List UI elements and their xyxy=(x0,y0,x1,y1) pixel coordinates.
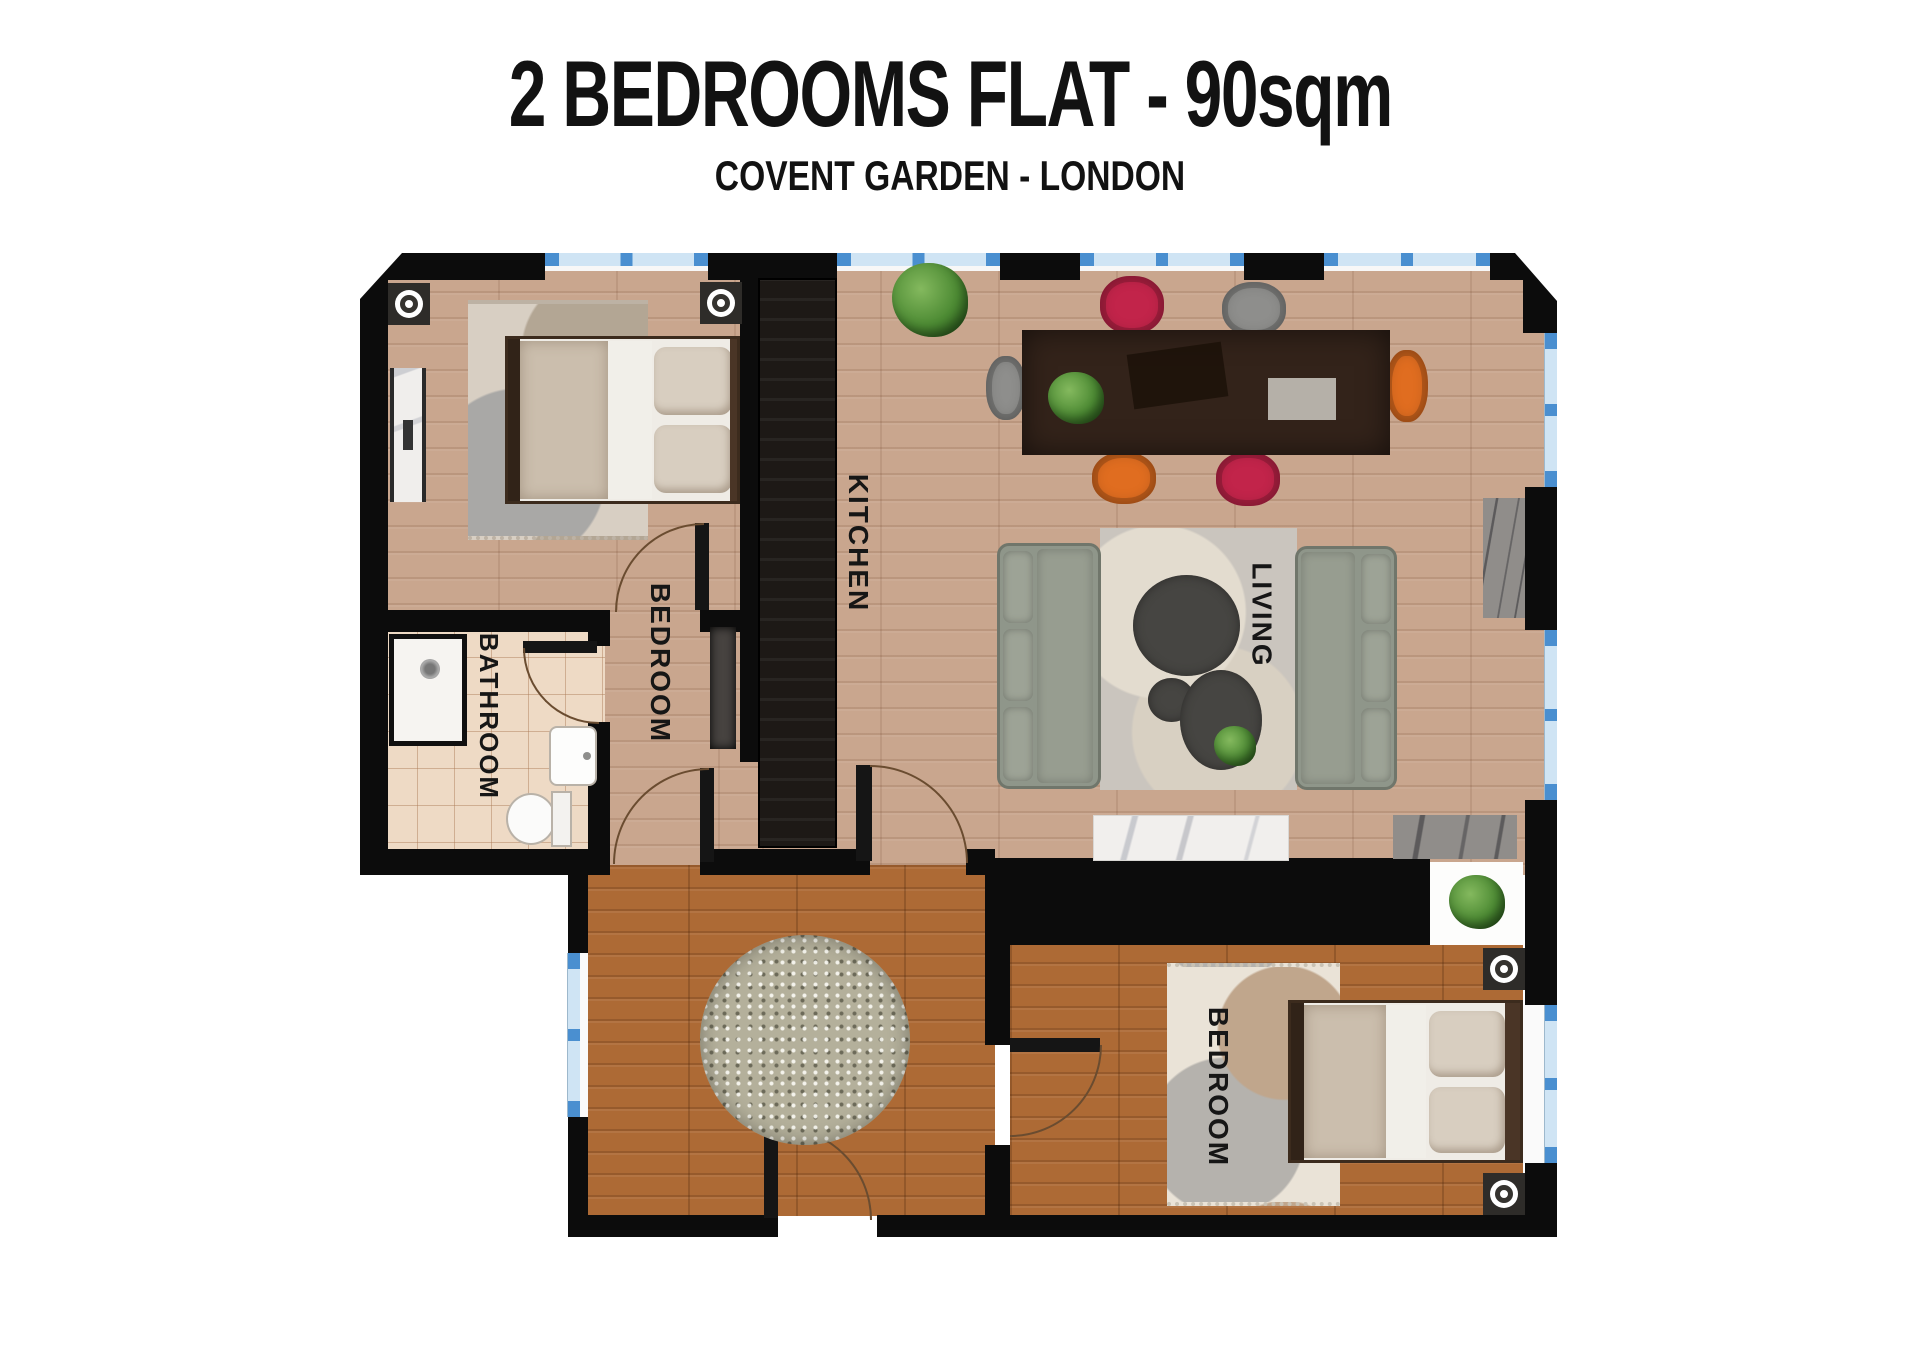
ceiling-light-ring xyxy=(1490,1180,1518,1208)
sofa-seat xyxy=(1301,552,1355,784)
wall-segment xyxy=(985,858,1430,945)
sofa-cushion xyxy=(1003,551,1033,623)
wall-segment xyxy=(1244,253,1324,280)
double-bed xyxy=(1288,1000,1523,1163)
room-label-living: LIVING xyxy=(1244,537,1280,692)
window xyxy=(545,253,708,266)
bed-duvet xyxy=(1304,1005,1386,1158)
window-recess xyxy=(1523,1005,1545,1163)
room-label-bedroom-top: BEDROOM xyxy=(642,588,678,738)
wall-segment xyxy=(877,1215,995,1237)
sofa-cushion xyxy=(1003,629,1033,701)
sofa-cushion xyxy=(1003,707,1033,781)
bed-pillow xyxy=(654,347,732,415)
marble-bench xyxy=(1393,815,1517,859)
corridor-cabinet xyxy=(710,627,736,749)
sofa-cushion xyxy=(1361,630,1391,702)
ceiling-light-icon xyxy=(700,282,742,324)
sofa-left xyxy=(997,543,1101,789)
tv-console xyxy=(1093,815,1289,861)
room-label-text: BATHROOM xyxy=(474,632,505,799)
serving-board xyxy=(1127,342,1229,410)
window-recess xyxy=(580,953,588,1117)
window xyxy=(1545,630,1557,800)
ceiling-light-icon xyxy=(388,283,430,325)
room-label-text: KITCHEN xyxy=(842,473,874,611)
room-label-text: BEDROOM xyxy=(644,583,676,743)
ceiling-light-icon xyxy=(1483,1173,1525,1215)
wall-segment xyxy=(568,1215,778,1237)
room-label-kitchen: KITCHEN xyxy=(840,465,876,620)
bed-pillow xyxy=(1429,1087,1505,1153)
wall-segment xyxy=(995,1215,1557,1237)
window xyxy=(1545,333,1557,487)
dining-chair-red xyxy=(1100,276,1164,334)
wall-segment xyxy=(1525,945,1557,1005)
plant-icon xyxy=(1449,875,1505,929)
room-label-text: BEDROOM xyxy=(1202,1007,1234,1167)
room-label-text: LIVING xyxy=(1246,562,1278,667)
round-rug xyxy=(700,935,910,1145)
dining-chair-gray xyxy=(986,356,1026,420)
page-title: 2 BEDROOMS FLAT - 90sqm xyxy=(508,40,1391,148)
dining-chair-orange xyxy=(1386,350,1428,422)
placemat xyxy=(1268,378,1336,420)
bed-footboard xyxy=(1291,1003,1304,1160)
sofa-cushion xyxy=(1361,708,1391,782)
wall-segment xyxy=(1525,487,1557,630)
wall-segment xyxy=(1000,253,1080,280)
wall-segment xyxy=(360,253,388,875)
bed-sheet xyxy=(1386,1005,1426,1158)
bed-pillow xyxy=(1429,1011,1505,1077)
bed-footboard xyxy=(508,339,520,501)
sofa-seat xyxy=(1037,549,1093,783)
bathroom-sink xyxy=(549,726,597,786)
double-bed xyxy=(505,336,740,504)
kitchen-counter xyxy=(758,278,837,848)
dining-chair-gray xyxy=(1222,282,1286,336)
dining-chair-red xyxy=(1216,452,1280,506)
toilet-tank xyxy=(551,791,572,847)
toilet xyxy=(506,793,556,845)
wall-segment xyxy=(360,849,608,875)
shower-drain xyxy=(420,659,440,679)
wall-segment xyxy=(1525,800,1557,945)
ceiling-light-ring xyxy=(1490,955,1518,983)
bed-sheet xyxy=(608,341,652,499)
floor-plan-canvas: 2 BEDROOMS FLAT - 90sqm COVENT GARDEN - … xyxy=(0,0,1920,1358)
page-subtitle-wrap: COVENT GARDEN - LONDON xyxy=(320,152,1580,200)
wall-segment xyxy=(700,849,870,875)
bed-headboard xyxy=(730,339,737,501)
table-plant-icon xyxy=(1048,372,1104,424)
dining-table xyxy=(1022,330,1390,455)
bed-pillow xyxy=(654,425,732,493)
sofa-right xyxy=(1295,546,1397,790)
wall-segment xyxy=(985,1145,1010,1215)
shower-tray xyxy=(389,634,467,746)
wall-segment xyxy=(568,875,588,953)
room-label-bedroom-bottom: BEDROOM xyxy=(1200,1007,1236,1167)
bed-duvet xyxy=(520,341,608,499)
sofa-cushion xyxy=(1361,554,1391,624)
wall-segment xyxy=(708,253,837,280)
dresser xyxy=(390,368,426,502)
fireplace xyxy=(1483,498,1525,618)
ceiling-light-ring xyxy=(395,290,423,318)
window xyxy=(1545,1005,1557,1163)
wall-segment xyxy=(985,945,1010,1045)
ceiling-light-icon xyxy=(1483,948,1525,990)
dining-chair-orange xyxy=(1092,452,1156,504)
page-title-wrap: 2 BEDROOMS FLAT - 90sqm xyxy=(320,40,1580,148)
plant-icon xyxy=(1214,726,1256,766)
window xyxy=(568,953,580,1117)
room-label-bathroom: BATHROOM xyxy=(471,626,507,806)
window xyxy=(1324,253,1490,266)
bed-headboard xyxy=(1505,1003,1520,1160)
rug-circle xyxy=(1133,575,1240,676)
plant-icon xyxy=(892,263,968,337)
ceiling-light-ring xyxy=(707,289,735,317)
window xyxy=(1080,253,1244,266)
page-subtitle: COVENT GARDEN - LONDON xyxy=(715,152,1185,200)
